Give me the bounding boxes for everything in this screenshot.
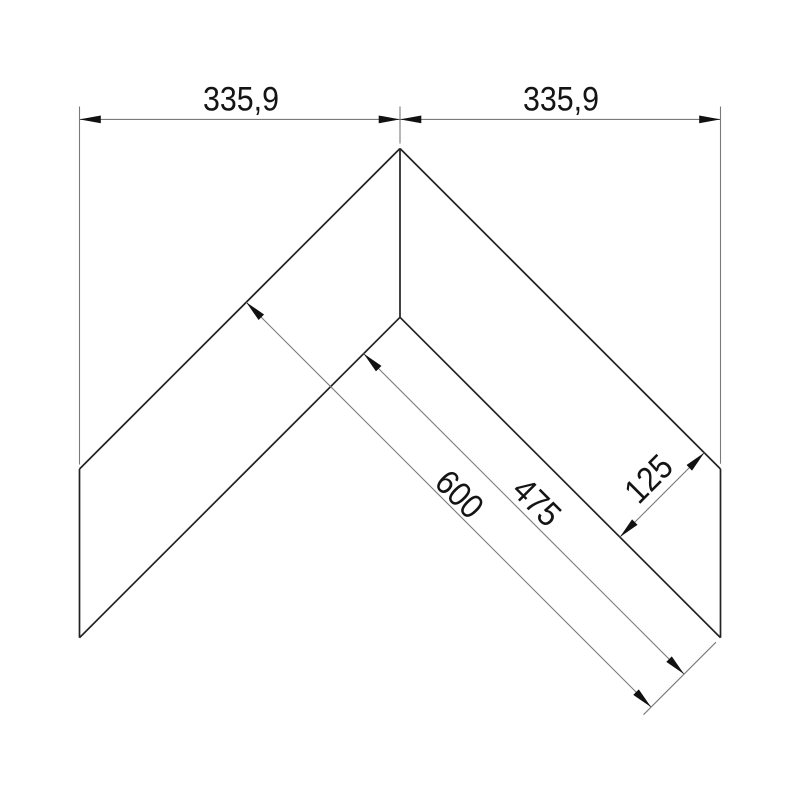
svg-text:335,9: 335,9 (523, 81, 599, 119)
svg-text:335,9: 335,9 (203, 81, 279, 119)
